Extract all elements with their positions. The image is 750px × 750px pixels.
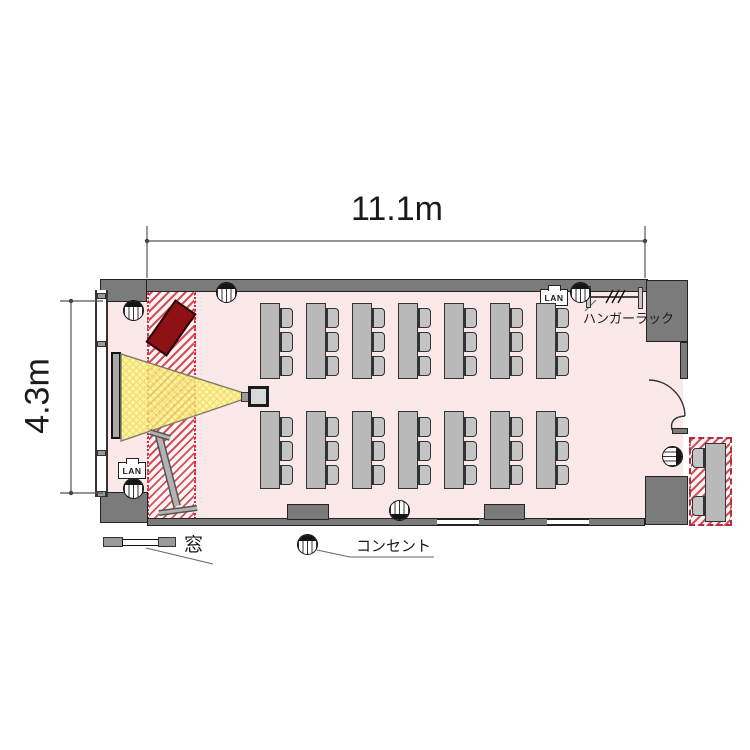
chair (510, 465, 523, 485)
chair (464, 356, 477, 376)
table (352, 411, 372, 489)
chair (280, 465, 293, 485)
chair (556, 356, 569, 376)
chair (464, 465, 477, 485)
table (260, 303, 280, 379)
outlet-label: コンセント (356, 535, 431, 556)
chair (326, 465, 339, 485)
chair (556, 308, 569, 328)
chair (280, 417, 293, 437)
chair (372, 356, 385, 376)
chair (510, 332, 523, 352)
table (536, 303, 556, 379)
outside-chair (692, 496, 705, 516)
table (306, 303, 326, 379)
chair (418, 417, 431, 437)
chair (464, 417, 477, 437)
furniture-layer (0, 0, 750, 750)
chair (510, 308, 523, 328)
chair (418, 441, 431, 461)
window-label: 窓 (184, 530, 203, 557)
chair (418, 465, 431, 485)
chair (326, 417, 339, 437)
chair (556, 417, 569, 437)
chair (280, 332, 293, 352)
table (398, 303, 418, 379)
table (536, 411, 556, 489)
chair (556, 441, 569, 461)
hanger-rack-label: ハンガーラック (583, 308, 674, 327)
table (260, 411, 280, 489)
chair (418, 332, 431, 352)
table (490, 303, 510, 379)
table (352, 303, 372, 379)
chair (510, 417, 523, 437)
chair (326, 308, 339, 328)
chair (418, 308, 431, 328)
chair (372, 465, 385, 485)
chair (418, 356, 431, 376)
chair (556, 332, 569, 352)
outside-table (705, 443, 726, 522)
table (444, 303, 464, 379)
chair (326, 332, 339, 352)
width-dimension-label: 11.1m (327, 190, 467, 229)
chair (326, 356, 339, 376)
table (444, 411, 464, 489)
chair (464, 332, 477, 352)
outside-chair (692, 448, 705, 468)
chair (372, 308, 385, 328)
chair (280, 308, 293, 328)
chair (280, 356, 293, 376)
height-dimension-label: 4.3m (19, 358, 58, 434)
table (306, 411, 326, 489)
chair (326, 441, 339, 461)
chair (464, 441, 477, 461)
chair (372, 332, 385, 352)
chair (510, 441, 523, 461)
chair (510, 356, 523, 376)
chair (464, 308, 477, 328)
chair (556, 465, 569, 485)
chair (280, 441, 293, 461)
chair (372, 417, 385, 437)
floor-plan: LAN LAN 11.1m 4.3m ハンガーラック 窓 コンセント (0, 0, 750, 750)
chair (372, 441, 385, 461)
table (490, 411, 510, 489)
table (398, 411, 418, 489)
